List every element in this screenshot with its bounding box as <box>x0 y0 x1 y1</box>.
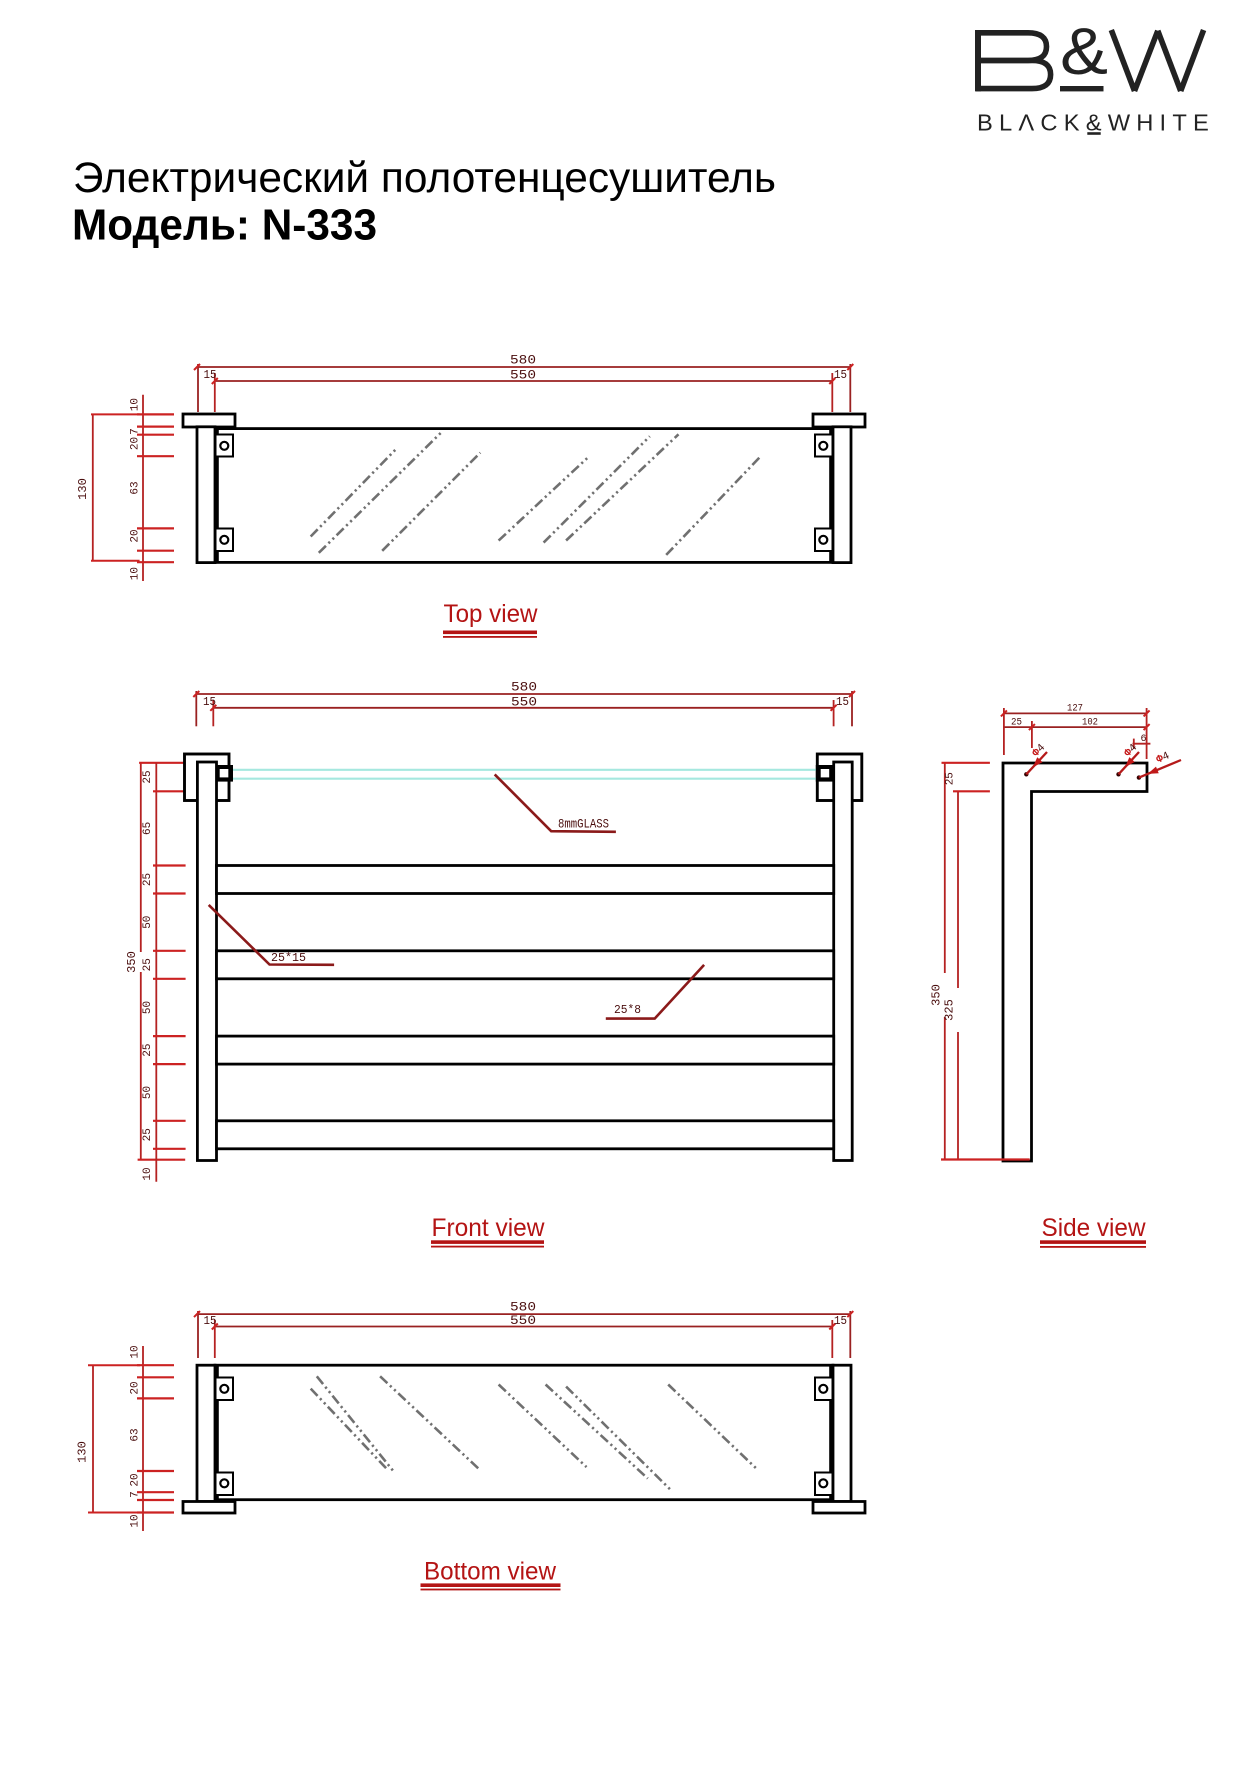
svg-text:50: 50 <box>142 1001 154 1014</box>
svg-text:10: 10 <box>130 567 142 580</box>
svg-text:20: 20 <box>130 437 142 450</box>
svg-text:325: 325 <box>943 999 957 1021</box>
svg-text:20: 20 <box>130 529 142 542</box>
svg-text:50: 50 <box>142 916 154 929</box>
svg-text:25: 25 <box>1011 718 1022 729</box>
svg-text:580: 580 <box>510 354 536 368</box>
svg-text:10: 10 <box>142 1167 154 1180</box>
svg-text:25*15: 25*15 <box>271 951 306 965</box>
svg-text:15: 15 <box>834 1315 847 1328</box>
svg-text:Top view: Top view <box>444 600 539 628</box>
svg-text:63: 63 <box>130 481 142 494</box>
svg-text:Модель: N-333: Модель: N-333 <box>72 201 377 250</box>
svg-text:130: 130 <box>76 478 90 500</box>
svg-text:350: 350 <box>930 984 944 1006</box>
svg-text:25: 25 <box>945 772 957 785</box>
svg-text:25: 25 <box>142 1128 154 1141</box>
svg-text:15: 15 <box>204 1315 217 1328</box>
svg-text:15: 15 <box>836 696 849 709</box>
svg-text:127: 127 <box>1067 704 1083 715</box>
svg-text:BLΛCK&WHITE: BLΛCK&WHITE <box>977 109 1215 135</box>
svg-text:10: 10 <box>130 398 142 411</box>
svg-text:25: 25 <box>142 770 154 783</box>
svg-text:25: 25 <box>142 873 154 886</box>
svg-text:20: 20 <box>130 1473 142 1486</box>
svg-text:&: & <box>1060 14 1108 88</box>
svg-text:25: 25 <box>142 958 154 971</box>
svg-text:130: 130 <box>76 1441 90 1463</box>
svg-text:25*8: 25*8 <box>614 1003 641 1017</box>
svg-text:50: 50 <box>142 1086 154 1099</box>
svg-text:7: 7 <box>130 428 142 435</box>
svg-text:Bottom view: Bottom view <box>424 1558 557 1586</box>
svg-text:10: 10 <box>130 1514 142 1527</box>
svg-text:65: 65 <box>142 822 154 835</box>
svg-text:Front view: Front view <box>432 1214 546 1242</box>
svg-text:10: 10 <box>130 1345 142 1358</box>
svg-text:15: 15 <box>834 369 847 382</box>
svg-text:Φ4: Φ4 <box>1030 742 1048 760</box>
svg-text:7: 7 <box>130 1491 142 1498</box>
svg-text:102: 102 <box>1082 718 1098 729</box>
svg-text:Электрический полотенцесушител: Электрический полотенцесушитель <box>73 154 776 202</box>
svg-text:15: 15 <box>203 696 216 709</box>
svg-text:550: 550 <box>511 695 537 709</box>
svg-text:Side view: Side view <box>1042 1214 1147 1242</box>
svg-text:15: 15 <box>204 369 217 382</box>
svg-text:25: 25 <box>142 1043 154 1056</box>
svg-text:63: 63 <box>130 1428 142 1441</box>
svg-text:550: 550 <box>510 369 536 383</box>
svg-text:20: 20 <box>130 1381 142 1394</box>
svg-text:580: 580 <box>510 1301 536 1315</box>
svg-text:350: 350 <box>125 951 139 973</box>
svg-text:550: 550 <box>510 1314 536 1328</box>
svg-text:6: 6 <box>1140 734 1146 745</box>
svg-text:580: 580 <box>511 681 537 695</box>
svg-text:8mmGLASS: 8mmGLASS <box>558 817 609 832</box>
